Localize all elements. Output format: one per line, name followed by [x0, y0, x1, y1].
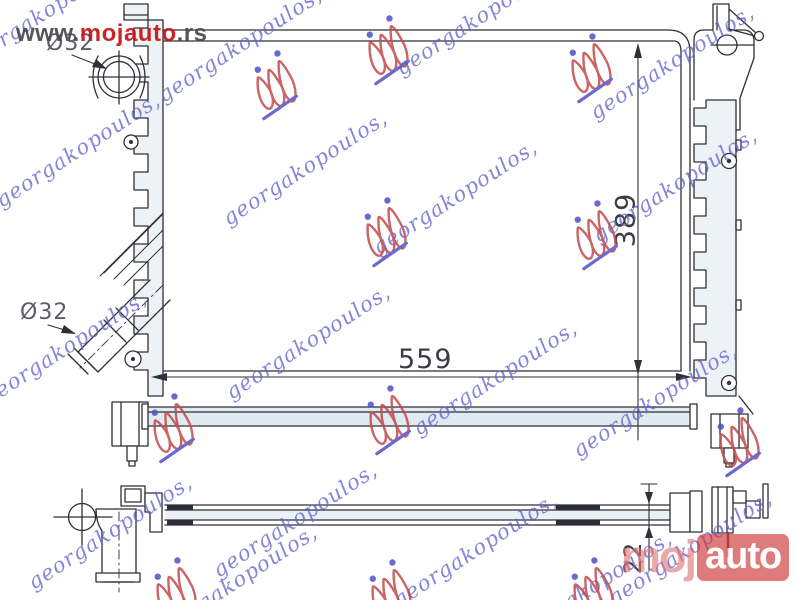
- left-tank: [68, 4, 170, 466]
- mount-stud: [763, 484, 768, 518]
- radiator-line-drawing: [0, 0, 800, 600]
- radiator-core: [163, 30, 690, 371]
- logo-auto-text: auto: [697, 534, 789, 581]
- bottom-tank: [142, 404, 697, 429]
- bracket-pin: [724, 448, 734, 463]
- site-url-prefix: www.: [16, 20, 80, 47]
- upper-inlet-pipe: [89, 51, 149, 104]
- top-mount-tab: [124, 4, 148, 20]
- bottom-right-bracket: [711, 396, 753, 467]
- site-url-suffix: .rs: [177, 20, 208, 47]
- site-url-watermark: www.mojauto.rs: [16, 20, 207, 48]
- radiator-product-image: Ø32 Ø32 559 389 22 georgakopoulos,georga…: [0, 0, 800, 600]
- right-tank: [694, 4, 764, 467]
- site-url-brand: mojauto: [80, 20, 177, 47]
- bracket-pin: [127, 446, 137, 461]
- logo-moj-text: moj: [621, 531, 695, 583]
- neck-bolt: [755, 32, 764, 41]
- front-view: [48, 4, 764, 467]
- side-core-body: [165, 505, 690, 525]
- mojauto-logo: moj auto: [621, 531, 789, 583]
